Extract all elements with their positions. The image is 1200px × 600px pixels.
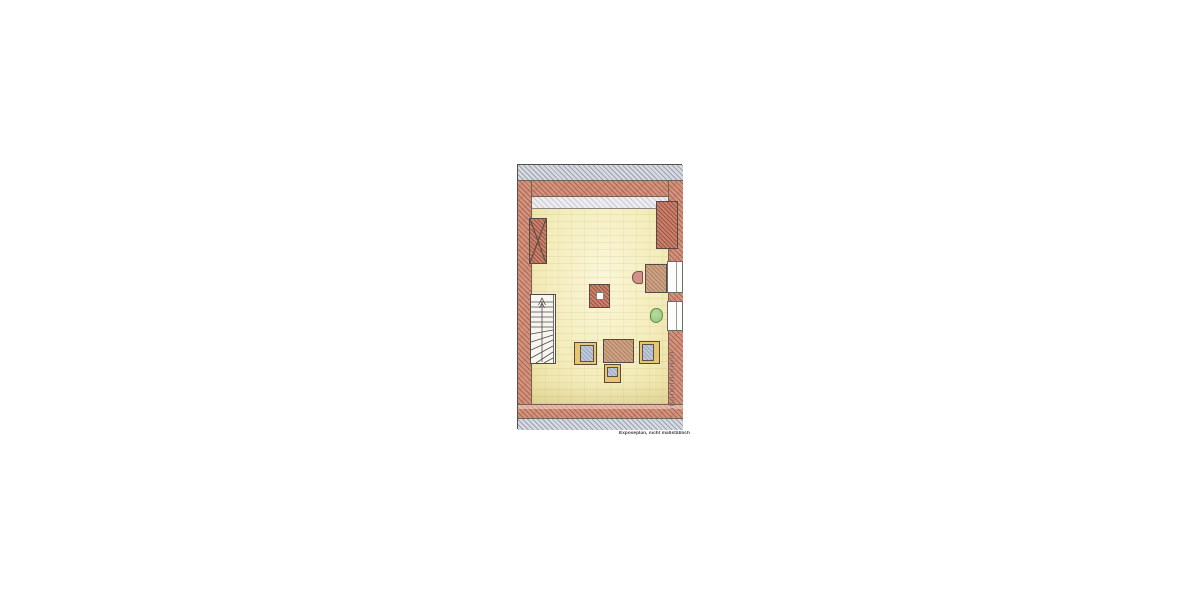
- attic-headroom-strip: [532, 197, 668, 209]
- side-chair-seat: [607, 367, 618, 377]
- canvas: Exposéplan, nicht maßstäblich: [0, 0, 1200, 600]
- window-upper: [667, 261, 683, 293]
- plan-caption: Exposéplan, nicht maßstäblich: [619, 431, 690, 436]
- coffee-table: [603, 339, 634, 363]
- pillar-core: [596, 292, 604, 300]
- armchair-left: [574, 342, 597, 365]
- floor-plan: [517, 164, 682, 429]
- wall-bottom: [518, 404, 683, 418]
- desk: [645, 264, 667, 293]
- pillar: [589, 284, 610, 308]
- watermark-signature: [670, 351, 674, 409]
- wall-top: [518, 181, 683, 197]
- roof-band-bottom: [518, 418, 683, 430]
- armchair-left-seat: [580, 345, 594, 362]
- roof-band-top: [518, 165, 683, 181]
- staircase-drawing: [530, 294, 556, 364]
- window-lower: [667, 301, 683, 331]
- wall-chimney-block: [656, 201, 678, 249]
- chimney-cross-icon: [529, 218, 547, 264]
- armchair-right: [639, 341, 660, 364]
- armchair-right-seat: [642, 344, 654, 361]
- side-chair: [604, 364, 621, 383]
- staircase: [530, 294, 556, 364]
- desk-chair: [632, 271, 643, 284]
